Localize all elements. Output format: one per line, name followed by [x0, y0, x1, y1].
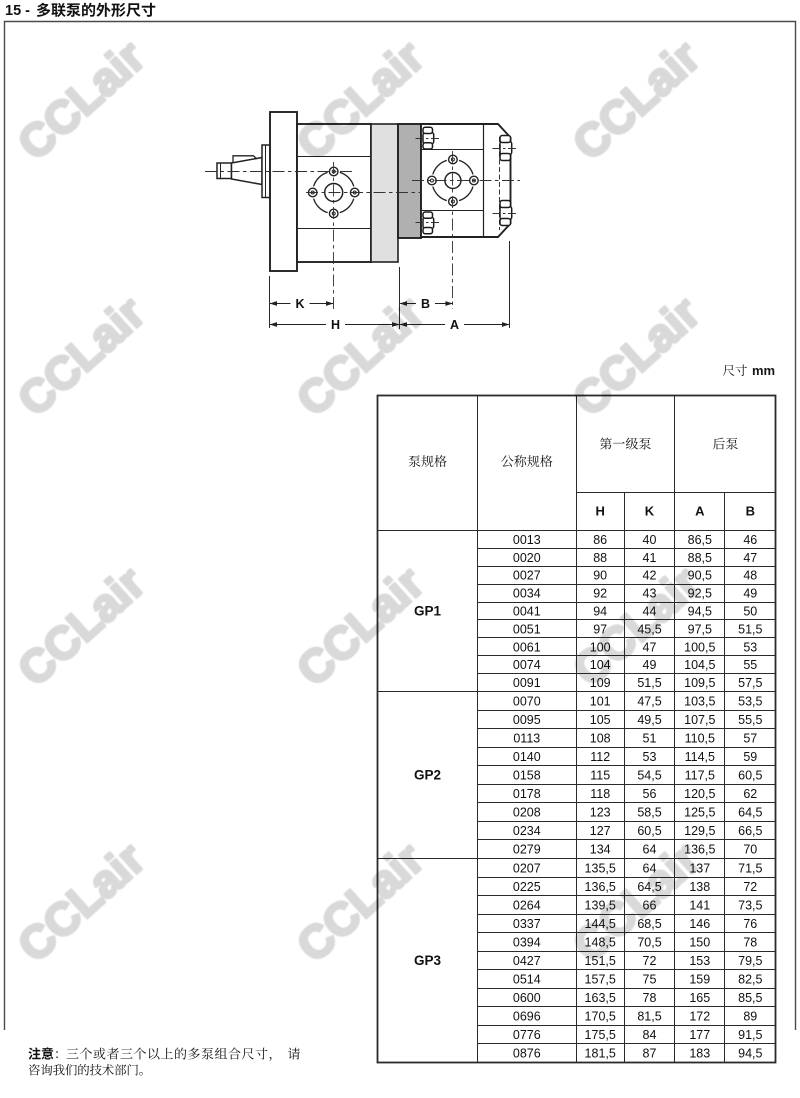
svg-text:mm: mm — [752, 363, 775, 378]
svg-text:46: 46 — [743, 533, 757, 547]
svg-text:94: 94 — [593, 605, 607, 619]
svg-text:181,5: 181,5 — [585, 1047, 616, 1061]
svg-text:0394: 0394 — [513, 936, 541, 950]
svg-text:72: 72 — [643, 954, 657, 968]
svg-text:CCLair: CCLair — [563, 30, 710, 170]
svg-text:0178: 0178 — [513, 787, 541, 801]
svg-text:88,5: 88,5 — [688, 551, 712, 565]
svg-text:CCLair: CCLair — [287, 832, 434, 972]
svg-text:0264: 0264 — [513, 898, 541, 912]
svg-text:92: 92 — [593, 587, 607, 601]
svg-text:177: 177 — [689, 1028, 710, 1042]
svg-text:0027: 0027 — [513, 569, 541, 583]
svg-text:49,5: 49,5 — [637, 713, 661, 727]
svg-text:0041: 0041 — [513, 605, 541, 619]
svg-text:118: 118 — [590, 787, 610, 801]
svg-text:60,5: 60,5 — [738, 769, 762, 783]
svg-text:0427: 0427 — [513, 954, 541, 968]
svg-text:0113: 0113 — [513, 731, 540, 745]
svg-text:K: K — [295, 297, 304, 311]
svg-text:114,5: 114,5 — [685, 750, 715, 764]
svg-text:0337: 0337 — [513, 917, 541, 931]
svg-text:125,5: 125,5 — [684, 806, 715, 820]
svg-text:B: B — [421, 297, 430, 311]
svg-text:47,5: 47,5 — [637, 694, 661, 708]
svg-text:51: 51 — [643, 731, 657, 745]
svg-text:91,5: 91,5 — [738, 1028, 762, 1042]
svg-text:87: 87 — [643, 1047, 657, 1061]
svg-text:86: 86 — [593, 533, 607, 547]
svg-text:115: 115 — [590, 769, 610, 783]
svg-text:0208: 0208 — [513, 806, 541, 820]
svg-text:55,5: 55,5 — [738, 713, 762, 727]
svg-text:0074: 0074 — [513, 658, 541, 672]
svg-text:0514: 0514 — [513, 973, 541, 987]
svg-text:70: 70 — [743, 843, 757, 857]
svg-text:97,5: 97,5 — [688, 622, 712, 636]
svg-text:104,5: 104,5 — [684, 658, 715, 672]
svg-text:A: A — [450, 318, 459, 332]
svg-text:0140: 0140 — [513, 750, 541, 764]
svg-text:89: 89 — [743, 1010, 757, 1024]
svg-text:88: 88 — [593, 551, 607, 565]
svg-text:0600: 0600 — [513, 991, 541, 1005]
svg-text:146: 146 — [689, 917, 710, 931]
svg-text:82,5: 82,5 — [738, 973, 762, 987]
svg-text:66,5: 66,5 — [738, 824, 762, 838]
svg-text:CCLair: CCLair — [8, 832, 155, 972]
svg-text:107,5: 107,5 — [684, 713, 715, 727]
svg-text:165: 165 — [689, 991, 710, 1005]
svg-text:57: 57 — [743, 731, 757, 745]
svg-text:CCLair: CCLair — [287, 286, 434, 426]
svg-text:55: 55 — [743, 658, 757, 672]
svg-text:75: 75 — [643, 973, 657, 987]
svg-text:62: 62 — [743, 787, 757, 801]
svg-text:86,5: 86,5 — [688, 533, 712, 547]
svg-text:84: 84 — [643, 1028, 657, 1042]
svg-text:49: 49 — [643, 658, 657, 672]
svg-text:0876: 0876 — [513, 1047, 541, 1061]
svg-text:0034: 0034 — [513, 587, 541, 601]
svg-text:90: 90 — [593, 569, 607, 583]
svg-text:123: 123 — [590, 806, 611, 820]
svg-text:110,5: 110,5 — [685, 731, 715, 745]
svg-text:0091: 0091 — [513, 676, 541, 690]
svg-text:79,5: 79,5 — [738, 954, 762, 968]
svg-text:170,5: 170,5 — [585, 1010, 616, 1024]
svg-text:51,5: 51,5 — [637, 676, 661, 690]
svg-text:134: 134 — [590, 843, 611, 857]
svg-text:53,5: 53,5 — [738, 694, 762, 708]
svg-text:109,5: 109,5 — [684, 676, 715, 690]
svg-text:70,5: 70,5 — [637, 936, 661, 950]
svg-text:0776: 0776 — [513, 1028, 541, 1042]
svg-text:172: 172 — [689, 1010, 710, 1024]
svg-text:0061: 0061 — [513, 640, 541, 654]
svg-text:CCLair: CCLair — [563, 286, 710, 426]
svg-text:127: 127 — [590, 824, 611, 838]
svg-text:0158: 0158 — [513, 769, 541, 783]
svg-text:159: 159 — [689, 973, 710, 987]
svg-text:81,5: 81,5 — [637, 1010, 661, 1024]
svg-text:50: 50 — [743, 605, 757, 619]
svg-text:0051: 0051 — [513, 622, 541, 636]
svg-text:54,5: 54,5 — [637, 769, 661, 783]
svg-text:141: 141 — [689, 898, 710, 912]
svg-text:183: 183 — [689, 1047, 710, 1061]
svg-text:175,5: 175,5 — [585, 1028, 616, 1042]
svg-text:CCLair: CCLair — [8, 556, 155, 696]
svg-text:GP2: GP2 — [414, 768, 441, 783]
svg-text:0070: 0070 — [513, 694, 541, 708]
svg-text:85,5: 85,5 — [738, 991, 762, 1005]
svg-text:58,5: 58,5 — [637, 806, 661, 820]
svg-text:0020: 0020 — [513, 551, 541, 565]
svg-text:GP3: GP3 — [414, 953, 442, 968]
svg-text:71,5: 71,5 — [738, 861, 762, 875]
svg-text:105: 105 — [590, 713, 611, 727]
svg-text:120,5: 120,5 — [684, 787, 715, 801]
svg-text:153: 153 — [689, 954, 710, 968]
svg-text:103,5: 103,5 — [684, 694, 715, 708]
svg-text:157,5: 157,5 — [585, 973, 616, 987]
svg-text:0013: 0013 — [513, 533, 541, 547]
svg-text:76: 76 — [743, 917, 757, 931]
svg-text:CCLair: CCLair — [8, 286, 155, 426]
svg-text:15 -: 15 - — [5, 3, 30, 19]
svg-text:112: 112 — [590, 750, 610, 764]
svg-text:0207: 0207 — [513, 861, 541, 875]
svg-text:59: 59 — [743, 750, 757, 764]
svg-text:H: H — [596, 504, 605, 519]
svg-text:72: 72 — [743, 880, 757, 894]
svg-text:117,5: 117,5 — [685, 769, 715, 783]
svg-text:0696: 0696 — [513, 1010, 541, 1024]
svg-text:CCLair: CCLair — [287, 556, 434, 696]
svg-text:0095: 0095 — [513, 713, 541, 727]
svg-text:51,5: 51,5 — [738, 622, 762, 636]
svg-text:49: 49 — [743, 587, 757, 601]
svg-text:78: 78 — [643, 991, 657, 1005]
svg-text:CCLair: CCLair — [8, 30, 155, 170]
svg-text:57,5: 57,5 — [738, 676, 762, 690]
svg-text:47: 47 — [743, 551, 757, 565]
svg-text:56: 56 — [643, 787, 657, 801]
svg-text:0279: 0279 — [513, 843, 541, 857]
svg-text:53: 53 — [643, 750, 657, 764]
svg-text:150: 150 — [689, 936, 710, 950]
svg-text:100,5: 100,5 — [684, 640, 715, 654]
svg-text:129,5: 129,5 — [684, 824, 715, 838]
svg-text:K: K — [645, 504, 655, 519]
svg-text:H: H — [331, 318, 340, 332]
svg-text:48: 48 — [743, 569, 757, 583]
svg-text:60,5: 60,5 — [637, 824, 661, 838]
svg-text:94,5: 94,5 — [738, 1047, 762, 1061]
svg-text:0225: 0225 — [513, 880, 541, 894]
svg-text:0234: 0234 — [513, 824, 541, 838]
svg-text:135,5: 135,5 — [585, 861, 616, 875]
svg-text:A: A — [695, 504, 705, 519]
svg-text:53: 53 — [743, 640, 757, 654]
svg-text:64,5: 64,5 — [738, 806, 762, 820]
svg-text:163,5: 163,5 — [585, 991, 616, 1005]
svg-text:40: 40 — [643, 533, 657, 547]
svg-text:101: 101 — [590, 694, 611, 708]
svg-text:73,5: 73,5 — [738, 898, 762, 912]
svg-text:41: 41 — [643, 551, 657, 565]
svg-text:78: 78 — [743, 936, 757, 950]
svg-text:108: 108 — [590, 731, 611, 745]
svg-text:B: B — [746, 504, 755, 519]
